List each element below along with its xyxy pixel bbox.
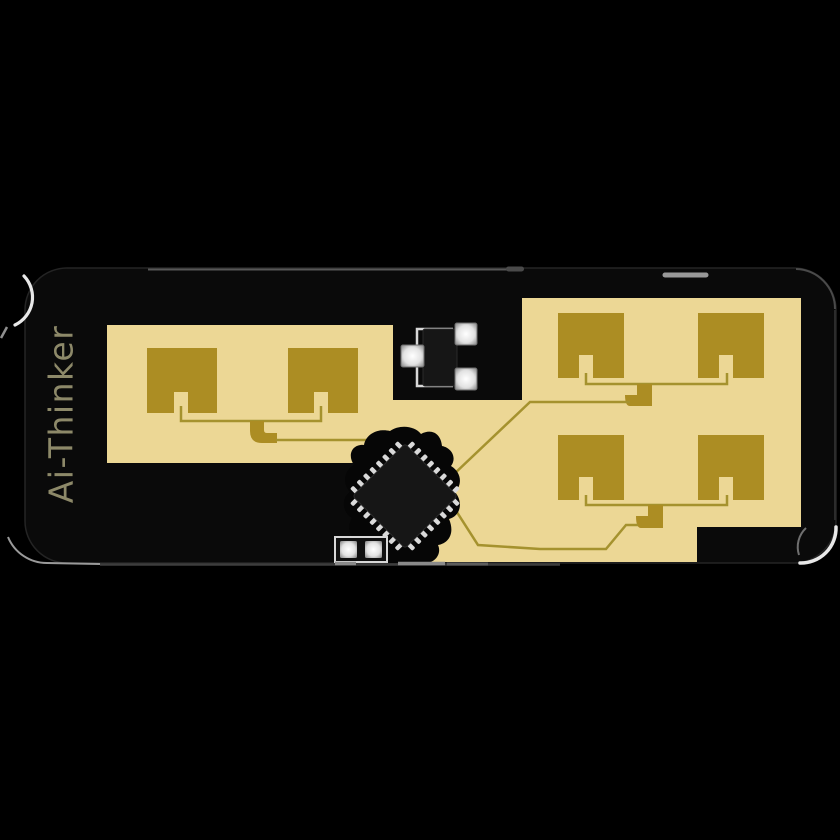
component-pad: [455, 368, 477, 390]
component-pad: [340, 541, 357, 558]
pcb-photo: Ai-Thinker: [0, 0, 840, 840]
component-body: [423, 329, 457, 386]
board-edge-highlight-top: [506, 267, 524, 272]
component-pad: [365, 541, 382, 558]
component-pad: [455, 323, 477, 345]
corner-notch-tail-topleft: [1, 327, 7, 338]
passive-component: [335, 537, 387, 562]
brand-text: Ai-Thinker: [42, 325, 81, 504]
photo-canvas: Ai-Thinker: [0, 0, 840, 840]
component-pad: [401, 345, 424, 367]
